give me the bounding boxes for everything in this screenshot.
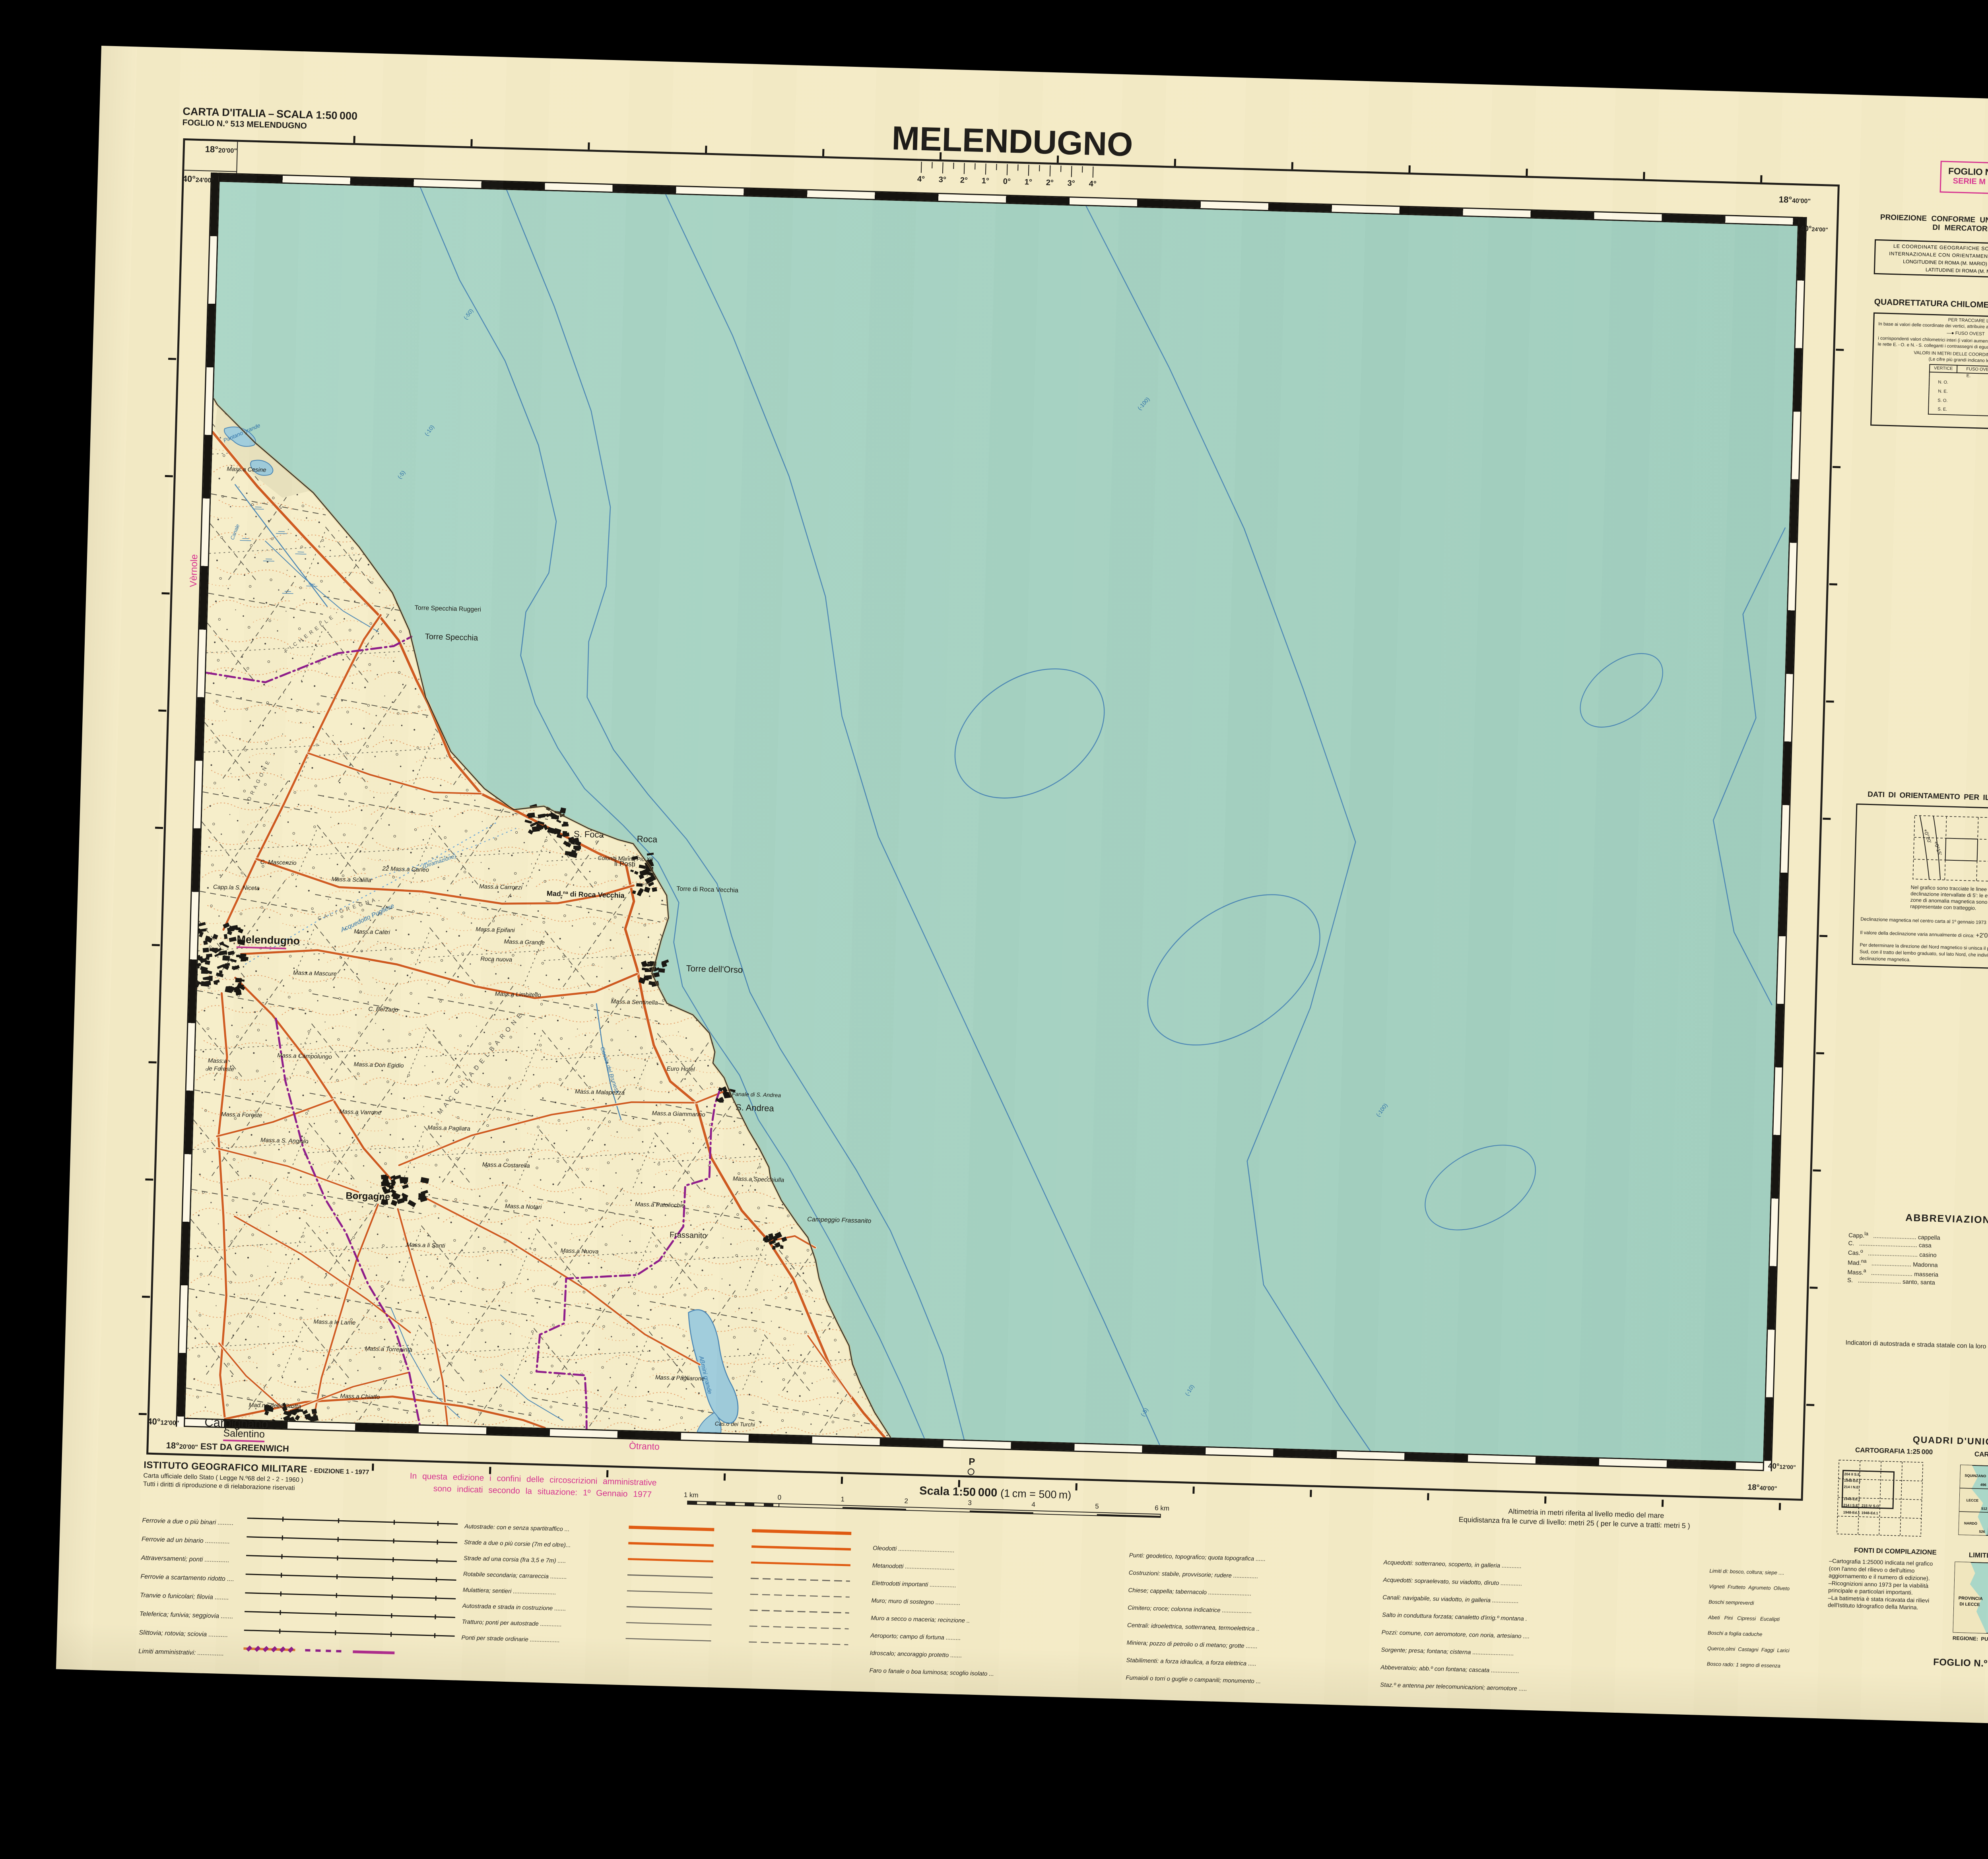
svg-text:1°: 1° [1024, 178, 1032, 187]
svg-text:NARDÒ: NARDÒ [1964, 1521, 1977, 1525]
svg-text:Fanale di S. Andrea: Fanale di S. Andrea [732, 1091, 781, 1098]
svg-text:Melendugno: Melendugno [237, 933, 300, 947]
svg-text:Mass.a Sentinella: Mass.a Sentinella [611, 998, 658, 1006]
svg-text:Roca nuova: Roca nuova [480, 956, 513, 963]
svg-text:Mass.a Foreste: Mass.a Foreste [221, 1111, 262, 1119]
svg-text:Capp.la S. Niceta: Capp.la S. Niceta [213, 884, 260, 892]
svg-text:Roca: Roca [637, 834, 658, 844]
svg-text:Mass.a Varrone: Mass.a Varrone [339, 1108, 381, 1116]
svg-text:Torre Specchia: Torre Specchia [425, 632, 478, 642]
svg-text:Frassanito: Frassanito [670, 1230, 707, 1240]
svg-text:6 km: 6 km [1155, 1504, 1169, 1512]
svg-text:+0°15': +0°15' [1933, 840, 1943, 856]
svg-text:1948-Ed.1: 1948-Ed.1 [1843, 1497, 1860, 1501]
svg-text:526: 526 [1979, 1529, 1985, 1533]
svg-text:Mass.a Nuova: Mass.a Nuova [561, 1247, 599, 1255]
svg-text:214 I S.E.: 214 I S.E. [1843, 1503, 1859, 1508]
svg-text:Mass.a Patolicchie: Mass.a Patolicchie [635, 1201, 685, 1209]
svg-text:Mass.a: Mass.a [208, 1057, 227, 1064]
svg-text:3°: 3° [1067, 179, 1075, 188]
svg-text:Mass.a Pagliara: Mass.a Pagliara [427, 1124, 470, 1132]
svg-text:2°: 2° [1046, 179, 1054, 188]
svg-text:1948-Ed.1: 1948-Ed.1 [1861, 1511, 1878, 1515]
svg-text:1 km: 1 km [683, 1491, 698, 1499]
svg-text:Mass.a Don Egidio: Mass.a Don Egidio [353, 1061, 404, 1069]
svg-text:DI LECCE: DI LECCE [1959, 1602, 1980, 1607]
svg-text:3: 3 [968, 1499, 972, 1506]
svg-text:5: 5 [1095, 1502, 1099, 1510]
svg-text:Mass.a Calitri: Mass.a Calitri [354, 928, 390, 936]
svg-text:3°: 3° [939, 175, 947, 184]
svg-text:S. Andrea: S. Andrea [736, 1102, 775, 1114]
svg-text:Mass.a Specchiulla: Mass.a Specchiulla [733, 1175, 784, 1184]
svg-text:Euro Hotel: Euro Hotel [666, 1065, 695, 1073]
svg-text:1: 1 [841, 1495, 845, 1503]
svg-text:Mass.a Limbitello: Mass.a Limbitello [495, 991, 541, 999]
svg-text:Mass.a Costarella: Mass.a Costarella [482, 1161, 530, 1169]
svg-text:214 I N.E.: 214 I N.E. [1844, 1485, 1860, 1489]
svg-text:215 IV S.O.: 215 IV S.O. [1862, 1504, 1880, 1508]
svg-text:Mass.a le Lame: Mass.a le Lame [313, 1318, 355, 1326]
svg-text:512: 512 [1981, 1507, 1987, 1511]
svg-text:Mass.a Carrozzi: Mass.a Carrozzi [479, 883, 522, 891]
svg-text:204 II S.E.: 204 II S.E. [1844, 1472, 1861, 1477]
svg-text:Mass.a S. Angiolo: Mass.a S. Angiolo [260, 1137, 309, 1145]
svg-text:4: 4 [1031, 1501, 1035, 1508]
svg-text:Mass.a Torrepinta: Mass.a Torrepinta [365, 1345, 412, 1353]
svg-text:Mass.a Epifani: Mass.a Epifani [476, 926, 515, 934]
svg-text:Mass.a Chiatto: Mass.a Chiatto [340, 1393, 380, 1401]
svg-text:Mass.a Pagliarone: Mass.a Pagliarone [655, 1374, 705, 1382]
svg-text:4°: 4° [917, 175, 925, 184]
svg-text:Cas.o dei Turchi: Cas.o dei Turchi [715, 1420, 755, 1428]
svg-text:Mass.a Cesine: Mass.a Cesine [227, 466, 266, 473]
svg-text:0°: 0° [1003, 177, 1011, 186]
svg-text:le Foreste: le Foreste [208, 1065, 234, 1073]
svg-text:1948-Ed.1: 1948-Ed.1 [1844, 1479, 1861, 1483]
svg-text:C. Berzario: C. Berzario [368, 1006, 398, 1013]
svg-text:Mass.a li Santi: Mass.a li Santi [406, 1242, 446, 1250]
svg-text:2: 2 [904, 1497, 908, 1505]
svg-text:Mass.a Notari: Mass.a Notari [505, 1203, 542, 1211]
svg-text:2°: 2° [960, 176, 968, 185]
svg-text:Mass.a Scalilla: Mass.a Scalilla [331, 876, 371, 884]
svg-text:4°: 4° [1089, 180, 1097, 189]
svg-text:1948-Ed.1: 1948-Ed.1 [1843, 1510, 1860, 1515]
svg-text:SQUINZANO: SQUINZANO [1965, 1473, 1986, 1478]
svg-text:C. Mascenzio: C. Mascenzio [260, 859, 297, 867]
svg-text:22 Mass.a Carleo: 22 Mass.a Carleo [382, 865, 429, 873]
svg-text:PROVINCIA: PROVINCIA [1959, 1596, 1983, 1601]
svg-text:496: 496 [1980, 1483, 1986, 1486]
svg-text:Torre dell'Orso: Torre dell'Orso [686, 963, 743, 975]
svg-text:Mass.a Grande: Mass.a Grande [504, 938, 545, 946]
svg-text:S. Foca: S. Foca [574, 829, 604, 840]
svg-text:0: 0 [777, 1494, 781, 1501]
svg-text:Mad.na della Grotta: Mad.na della Grotta [248, 1402, 301, 1410]
svg-text:1°: 1° [981, 177, 989, 186]
svg-text:LECCE: LECCE [1966, 1498, 1978, 1502]
svg-text:Borgagne: Borgagne [346, 1190, 390, 1202]
svg-text:Mass.a Mascure: Mass.a Mascure [293, 969, 337, 977]
